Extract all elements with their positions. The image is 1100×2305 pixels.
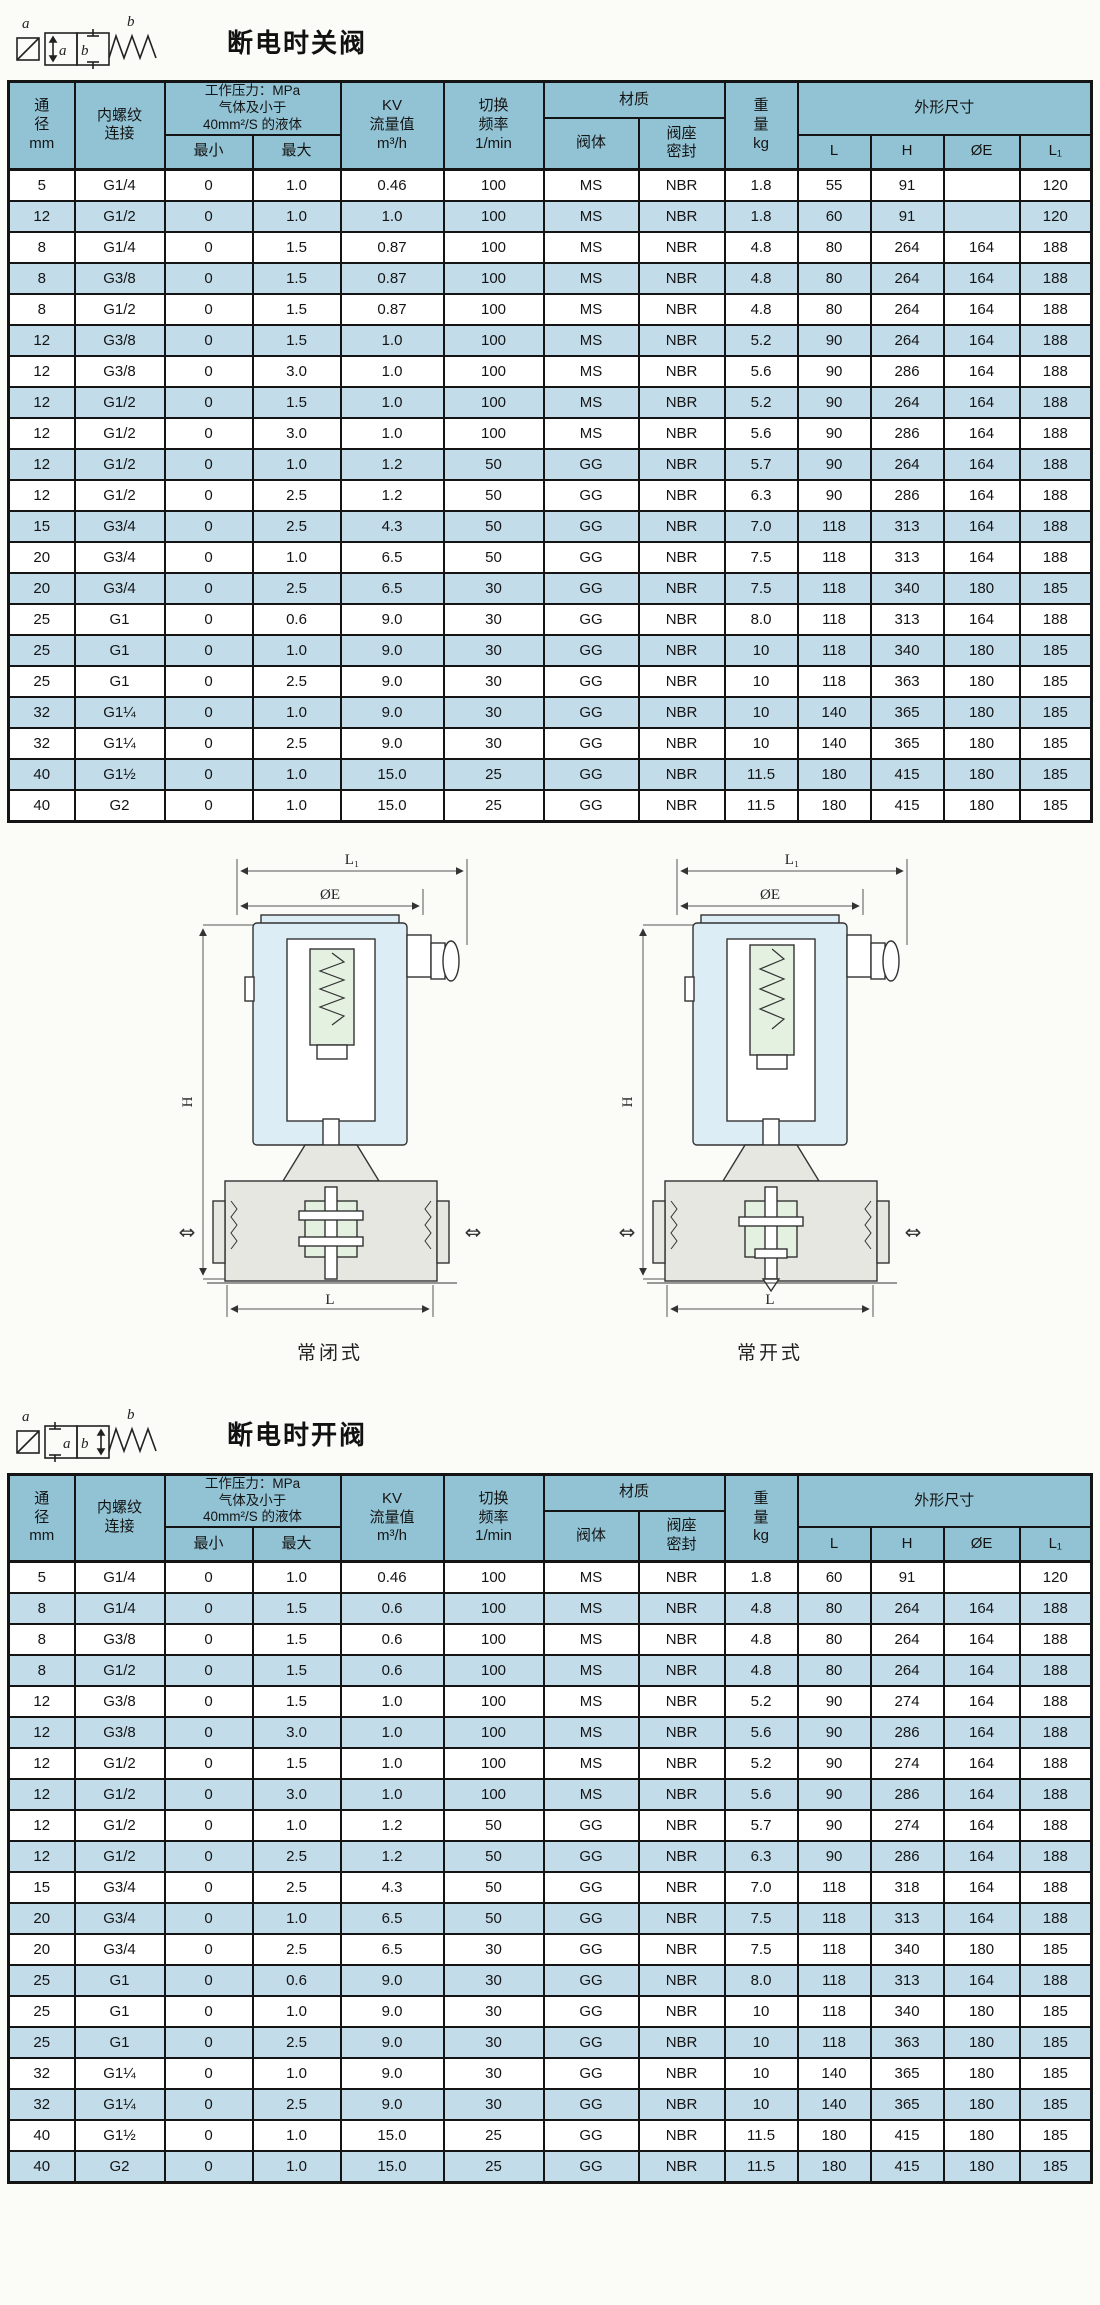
table-cell: 9.0	[341, 1965, 444, 1996]
solenoid-valve-symbol-icon: a b a b	[9, 12, 181, 70]
col-header-L1: L₁	[1020, 1527, 1092, 1562]
table-cell: 91	[871, 1562, 944, 1594]
table-cell: 25	[9, 1965, 75, 1996]
table-row: 32G1¼01.09.030GGNBR10140365180185	[9, 2058, 1092, 2089]
table-cell: 90	[798, 1717, 871, 1748]
table-cell: 140	[798, 2058, 871, 2089]
table-cell: NBR	[639, 232, 725, 263]
table-cell: 4.8	[725, 263, 798, 294]
col-header-thread: 内螺纹 连接	[75, 1474, 165, 1562]
table-row: 8G1/401.50.87100MSNBR4.880264164188	[9, 232, 1092, 263]
normally-open-diagram: L₁ ØE H L ⇔ ⇔ 常开式	[605, 849, 935, 1365]
col-header-valve-body: 阀体	[544, 118, 639, 169]
table-cell: 7.5	[725, 1934, 798, 1965]
table-cell: 1.0	[341, 201, 444, 232]
table-cell: 90	[798, 387, 871, 418]
table-cell: 100	[444, 1562, 544, 1594]
table-cell: 0	[165, 2058, 253, 2089]
table-row: 12G1/201.01.250GGNBR5.790264164188	[9, 449, 1092, 480]
table-cell: 188	[1020, 542, 1092, 573]
table-cell: 363	[871, 666, 944, 697]
table-cell: 185	[1020, 2027, 1092, 2058]
col-header-H: H	[871, 135, 944, 170]
table-cell: 15.0	[341, 2151, 444, 2183]
table-row: 25G102.59.030GGNBR10118363180185	[9, 666, 1092, 697]
table-cell: 365	[871, 728, 944, 759]
table-cell: 188	[1020, 449, 1092, 480]
table-cell: NBR	[639, 2027, 725, 2058]
table-cell: 8	[9, 232, 75, 263]
table-cell: 164	[944, 604, 1020, 635]
table-cell: 20	[9, 1903, 75, 1934]
table-cell: 6.5	[341, 573, 444, 604]
table-cell: 0	[165, 1779, 253, 1810]
table-row: 12G1/201.01.0100MSNBR1.86091120	[9, 201, 1092, 232]
table-cell: 12	[9, 1810, 75, 1841]
table-cell: MS	[544, 201, 639, 232]
table-cell: NBR	[639, 666, 725, 697]
table-cell: 5.6	[725, 1779, 798, 1810]
table-cell: 286	[871, 356, 944, 387]
table-row: 20G3/401.06.550GGNBR7.5118313164188	[9, 542, 1092, 573]
table-cell: G3/4	[75, 1872, 165, 1903]
table-cell: 180	[944, 573, 1020, 604]
table-cell: G1½	[75, 759, 165, 790]
table-cell: GG	[544, 2027, 639, 2058]
table-cell: 6.5	[341, 542, 444, 573]
table-cell: 188	[1020, 480, 1092, 511]
table-cell: 313	[871, 604, 944, 635]
table-cell: 2.5	[253, 480, 341, 511]
table-cell: GG	[544, 666, 639, 697]
table-cell: 9.0	[341, 2058, 444, 2089]
table-cell: 313	[871, 511, 944, 542]
table-cell: 188	[1020, 1593, 1092, 1624]
table-cell: G3/4	[75, 1903, 165, 1934]
table-cell: 25	[444, 759, 544, 790]
table-cell: 188	[1020, 1779, 1092, 1810]
table-cell: 30	[444, 728, 544, 759]
table-cell: NBR	[639, 790, 725, 822]
table-cell: 0	[165, 666, 253, 697]
table-cell: 90	[798, 356, 871, 387]
table-cell: 5.6	[725, 1717, 798, 1748]
table-cell: 50	[444, 1903, 544, 1934]
table-cell: 0.87	[341, 232, 444, 263]
table-cell: 80	[798, 263, 871, 294]
table-cell: 30	[444, 2058, 544, 2089]
table-cell: 164	[944, 1593, 1020, 1624]
table-row: 8G1/201.50.6100MSNBR4.880264164188	[9, 1655, 1092, 1686]
table-cell: 180	[798, 790, 871, 822]
table-cell: 0	[165, 511, 253, 542]
table-cell: 0.46	[341, 169, 444, 201]
table-cell: 1.5	[253, 1624, 341, 1655]
table-cell: 264	[871, 294, 944, 325]
table-cell: 4.8	[725, 232, 798, 263]
table-cell: 140	[798, 2089, 871, 2120]
table-cell: G1/4	[75, 1593, 165, 1624]
table-cell: GG	[544, 2089, 639, 2120]
table-row: 12G3/801.51.0100MSNBR5.290264164188	[9, 325, 1092, 356]
table-cell: 188	[1020, 1965, 1092, 1996]
table-cell: 1.0	[253, 1903, 341, 1934]
table-cell: 1.0	[253, 449, 341, 480]
table-cell: 5.6	[725, 418, 798, 449]
table-cell: GG	[544, 511, 639, 542]
table-cell: GG	[544, 480, 639, 511]
datasheet-page: a b a b 断电时关阀 通 径 mm 内螺纹 连接 工作压力：MPa 气体及…	[0, 0, 1100, 2194]
table-cell: 5.2	[725, 1686, 798, 1717]
table-cell: 100	[444, 1686, 544, 1717]
table-row: 12G1/202.51.250GGNBR6.390286164188	[9, 480, 1092, 511]
table-cell: 12	[9, 1779, 75, 1810]
table-cell: 11.5	[725, 759, 798, 790]
table-cell: 100	[444, 387, 544, 418]
table-cell: G1/2	[75, 449, 165, 480]
table-cell: 164	[944, 1841, 1020, 1872]
table-cell: 1.5	[253, 1655, 341, 1686]
table-cell: 1.0	[253, 201, 341, 232]
col-header-weight: 重 量 kg	[725, 82, 798, 170]
table-cell: 1.0	[253, 1996, 341, 2027]
table-cell: GG	[544, 2120, 639, 2151]
table-cell: MS	[544, 1686, 639, 1717]
table-cell: 188	[1020, 511, 1092, 542]
table-cell: 2.5	[253, 1841, 341, 1872]
table-cell: MS	[544, 387, 639, 418]
symbol-port-a-label: a	[22, 1409, 30, 1425]
table-row: 25G100.69.030GGNBR8.0118313164188	[9, 1965, 1092, 1996]
table-cell: 30	[444, 697, 544, 728]
table-row: 32G1¼01.09.030GGNBR10140365180185	[9, 697, 1092, 728]
table-cell: 164	[944, 1748, 1020, 1779]
table-cell: G1/2	[75, 480, 165, 511]
table-cell: 0	[165, 449, 253, 480]
table-cell: 0	[165, 418, 253, 449]
table-row: 12G3/803.01.0100MSNBR5.690286164188	[9, 356, 1092, 387]
table-cell: 164	[944, 1810, 1020, 1841]
table-cell: 164	[944, 1872, 1020, 1903]
col-header-dn: 通 径 mm	[9, 1474, 75, 1562]
col-header-max: 最大	[253, 135, 341, 170]
valve-cross-section-drawing: L₁ ØE H L ⇔ ⇔	[165, 849, 495, 1334]
col-header-valve-body: 阀体	[544, 1511, 639, 1562]
table-cell: 1.5	[253, 294, 341, 325]
table-cell: 30	[444, 2089, 544, 2120]
table-cell: MS	[544, 1748, 639, 1779]
table-cell: 10	[725, 697, 798, 728]
table-cell: 1.0	[341, 1748, 444, 1779]
table-cell: 188	[1020, 1841, 1092, 1872]
table-cell: MS	[544, 1562, 639, 1594]
table-cell: 164	[944, 1624, 1020, 1655]
table-cell: 118	[798, 1996, 871, 2027]
table-cell: NBR	[639, 1686, 725, 1717]
dim-label-l1: L₁	[785, 852, 799, 868]
table-cell: 0	[165, 1655, 253, 1686]
table-cell: MS	[544, 1779, 639, 1810]
table-cell: GG	[544, 604, 639, 635]
table-cell: 120	[1020, 169, 1092, 201]
table-cell: 80	[798, 294, 871, 325]
table-cell: 9.0	[341, 604, 444, 635]
table-cell: NBR	[639, 449, 725, 480]
table-row: 12G1/201.51.0100MSNBR5.290264164188	[9, 387, 1092, 418]
table-cell: 188	[1020, 387, 1092, 418]
table-cell: 1.8	[725, 1562, 798, 1594]
table-cell: 30	[444, 2027, 544, 2058]
table-cell: 8	[9, 263, 75, 294]
table-cell: 90	[798, 1810, 871, 1841]
table-cell: 12	[9, 418, 75, 449]
table-cell: 1.5	[253, 1686, 341, 1717]
table-cell: 0.6	[341, 1624, 444, 1655]
table-cell: 8	[9, 1593, 75, 1624]
table-cell: 415	[871, 759, 944, 790]
dim-label-l: L	[765, 1292, 774, 1308]
table-row: 12G1/201.51.0100MSNBR5.290274164188	[9, 1748, 1092, 1779]
table-cell: 100	[444, 1624, 544, 1655]
table-cell: G3/8	[75, 1686, 165, 1717]
table-cell: G1	[75, 604, 165, 635]
table-cell: G2	[75, 2151, 165, 2183]
flow-arrow-icon: ⇔	[179, 1220, 196, 1244]
table-cell: 185	[1020, 2058, 1092, 2089]
table-cell: 9.0	[341, 2089, 444, 2120]
table-cell: 188	[1020, 294, 1092, 325]
table-cell: GG	[544, 1841, 639, 1872]
table-cell: 0	[165, 2027, 253, 2058]
table-cell: 7.0	[725, 1872, 798, 1903]
table-cell: 40	[9, 790, 75, 822]
table-cell: NBR	[639, 294, 725, 325]
table-cell: 50	[444, 1810, 544, 1841]
table-cell: 20	[9, 1934, 75, 1965]
table-row: 12G3/803.01.0100MSNBR5.690286164188	[9, 1717, 1092, 1748]
table-cell: 8.0	[725, 604, 798, 635]
table-cell: 80	[798, 1593, 871, 1624]
table-cell: 11.5	[725, 2151, 798, 2183]
table-cell: NBR	[639, 1779, 725, 1810]
table-cell: 118	[798, 1903, 871, 1934]
table-cell: MS	[544, 356, 639, 387]
table-cell: GG	[544, 790, 639, 822]
table-cell: 118	[798, 1872, 871, 1903]
table-row: 12G1/202.51.250GGNBR6.390286164188	[9, 1841, 1092, 1872]
table-cell: 50	[444, 1841, 544, 1872]
table-cell: NBR	[639, 604, 725, 635]
table-cell: 10	[725, 635, 798, 666]
table-cell: MS	[544, 325, 639, 356]
table-cell: 164	[944, 480, 1020, 511]
table-cell: NBR	[639, 418, 725, 449]
table-cell: 264	[871, 1593, 944, 1624]
table-cell: 180	[944, 2027, 1020, 2058]
table-cell: 264	[871, 1624, 944, 1655]
table-row: 8G1/201.50.87100MSNBR4.880264164188	[9, 294, 1092, 325]
table-cell: 1.2	[341, 1841, 444, 1872]
table-cell: 313	[871, 542, 944, 573]
table-cell: 1.5	[253, 1593, 341, 1624]
table-cell	[944, 201, 1020, 232]
table-cell: 90	[798, 1748, 871, 1779]
table-cell: GG	[544, 1934, 639, 1965]
table-cell: 5	[9, 169, 75, 201]
table-cell: MS	[544, 169, 639, 201]
table-cell: NBR	[639, 759, 725, 790]
section-open-header: a b a b 断电时开阀	[9, 1405, 1093, 1463]
table-cell: NBR	[639, 1996, 725, 2027]
table-cell: 9.0	[341, 635, 444, 666]
table-row: 15G3/402.54.350GGNBR7.0118313164188	[9, 511, 1092, 542]
table-cell: 2.5	[253, 1872, 341, 1903]
table-cell: 164	[944, 418, 1020, 449]
table-cell: 91	[871, 169, 944, 201]
table-cell: 164	[944, 1717, 1020, 1748]
table-cell: 100	[444, 169, 544, 201]
table-cell: 32	[9, 2089, 75, 2120]
table-cell: 10	[725, 2027, 798, 2058]
table-cell: 4.3	[341, 511, 444, 542]
table-cell: 188	[1020, 1717, 1092, 1748]
col-header-min: 最小	[165, 135, 253, 170]
table-cell: 1.5	[253, 325, 341, 356]
table-row: 40G201.015.025GGNBR11.5180415180185	[9, 2151, 1092, 2183]
table-cell: 286	[871, 1779, 944, 1810]
table-cell: 0	[165, 790, 253, 822]
table-cell: NBR	[639, 1624, 725, 1655]
table-cell: G1/2	[75, 1748, 165, 1779]
table-cell: 1.0	[253, 2151, 341, 2183]
table-cell	[944, 169, 1020, 201]
table-cell: 0	[165, 759, 253, 790]
symbol-port-b-label: b	[127, 14, 135, 30]
table-cell: 30	[444, 573, 544, 604]
table-cell	[944, 1562, 1020, 1594]
table-cell: 365	[871, 2058, 944, 2089]
table-cell: NBR	[639, 1593, 725, 1624]
table-cell: G1/4	[75, 232, 165, 263]
table-row: 8G1/401.50.6100MSNBR4.880264164188	[9, 1593, 1092, 1624]
table-cell: GG	[544, 573, 639, 604]
table-cell: 0	[165, 2120, 253, 2151]
table-row: 40G1½01.015.025GGNBR11.5180415180185	[9, 759, 1092, 790]
table-row: 25G101.09.030GGNBR10118340180185	[9, 635, 1092, 666]
table-cell: 25	[9, 666, 75, 697]
table-cell: G3/4	[75, 573, 165, 604]
table-cell: 185	[1020, 759, 1092, 790]
table-cell: 80	[798, 1624, 871, 1655]
table-cell: 30	[444, 604, 544, 635]
table-cell: 8	[9, 294, 75, 325]
table-cell: 2.5	[253, 573, 341, 604]
table-row: 5G1/401.00.46100MSNBR1.86091120	[9, 1562, 1092, 1594]
table-row: 15G3/402.54.350GGNBR7.0118318164188	[9, 1872, 1092, 1903]
table-cell: 2.5	[253, 511, 341, 542]
symbol-port-b-label: b	[127, 1407, 135, 1423]
col-header-material: 材质	[544, 1474, 725, 1511]
table-cell: 9.0	[341, 2027, 444, 2058]
table-cell: G3/8	[75, 325, 165, 356]
table-cell: 0	[165, 573, 253, 604]
table-cell: 100	[444, 232, 544, 263]
table-cell: G3/4	[75, 542, 165, 573]
table-cell: 264	[871, 1655, 944, 1686]
table-cell: 188	[1020, 1903, 1092, 1934]
table-cell: G1/2	[75, 1841, 165, 1872]
table-cell: 0.6	[253, 604, 341, 635]
table-cell: 118	[798, 2027, 871, 2058]
table-cell: 1.8	[725, 169, 798, 201]
table-cell: 0.6	[341, 1593, 444, 1624]
table-cell: 40	[9, 759, 75, 790]
table-cell: 0	[165, 1934, 253, 1965]
table-cell: NBR	[639, 387, 725, 418]
table-cell: 3.0	[253, 1779, 341, 1810]
table-cell: 164	[944, 1655, 1020, 1686]
table-row: 8G3/801.50.6100MSNBR4.880264164188	[9, 1624, 1092, 1655]
table-cell: G1	[75, 635, 165, 666]
table-cell: 318	[871, 1872, 944, 1903]
col-header-dn: 通 径 mm	[9, 82, 75, 170]
table-cell: MS	[544, 294, 639, 325]
col-header-dims: 外形尺寸	[798, 82, 1092, 135]
table-cell: 180	[944, 1996, 1020, 2027]
table-cell: 11.5	[725, 790, 798, 822]
table-cell: 340	[871, 1934, 944, 1965]
table-cell: 180	[798, 759, 871, 790]
table-cell: 1.0	[341, 1686, 444, 1717]
col-header-min: 最小	[165, 1527, 253, 1562]
table-cell: 1.0	[341, 1717, 444, 1748]
table-cell: 15	[9, 1872, 75, 1903]
table-cell: NBR	[639, 542, 725, 573]
table-cell: 1.0	[253, 1562, 341, 1594]
section-open-title: 断电时开阀	[227, 1415, 367, 1452]
table-cell: 164	[944, 294, 1020, 325]
table-cell: 25	[9, 635, 75, 666]
table-cell: 1.0	[341, 1779, 444, 1810]
table-cell: 188	[1020, 418, 1092, 449]
table-cell: 90	[798, 1841, 871, 1872]
table-cell: 118	[798, 573, 871, 604]
table-cell: 2.5	[253, 2089, 341, 2120]
table-cell: 188	[1020, 1624, 1092, 1655]
table-cell: 6.5	[341, 1934, 444, 1965]
table-cell: 180	[798, 2151, 871, 2183]
table-cell: 8	[9, 1624, 75, 1655]
table-cell: NBR	[639, 1965, 725, 1996]
table-row: 12G1/203.01.0100MSNBR5.690286164188	[9, 1779, 1092, 1810]
table-cell: 415	[871, 790, 944, 822]
table-cell: MS	[544, 1717, 639, 1748]
table-cell: 4.8	[725, 1624, 798, 1655]
table-cell: 90	[798, 480, 871, 511]
table-cell: 80	[798, 232, 871, 263]
table-cell: NBR	[639, 697, 725, 728]
table-cell: G1	[75, 666, 165, 697]
table-cell: 188	[1020, 325, 1092, 356]
table-cell: G1	[75, 2027, 165, 2058]
table-cell: 12	[9, 325, 75, 356]
table-cell: G1/2	[75, 1810, 165, 1841]
normally-open-caption: 常开式	[737, 1338, 803, 1365]
table-cell: 1.0	[253, 790, 341, 822]
table-cell: 32	[9, 2058, 75, 2089]
table-cell: G3/4	[75, 511, 165, 542]
table-cell: 180	[944, 790, 1020, 822]
